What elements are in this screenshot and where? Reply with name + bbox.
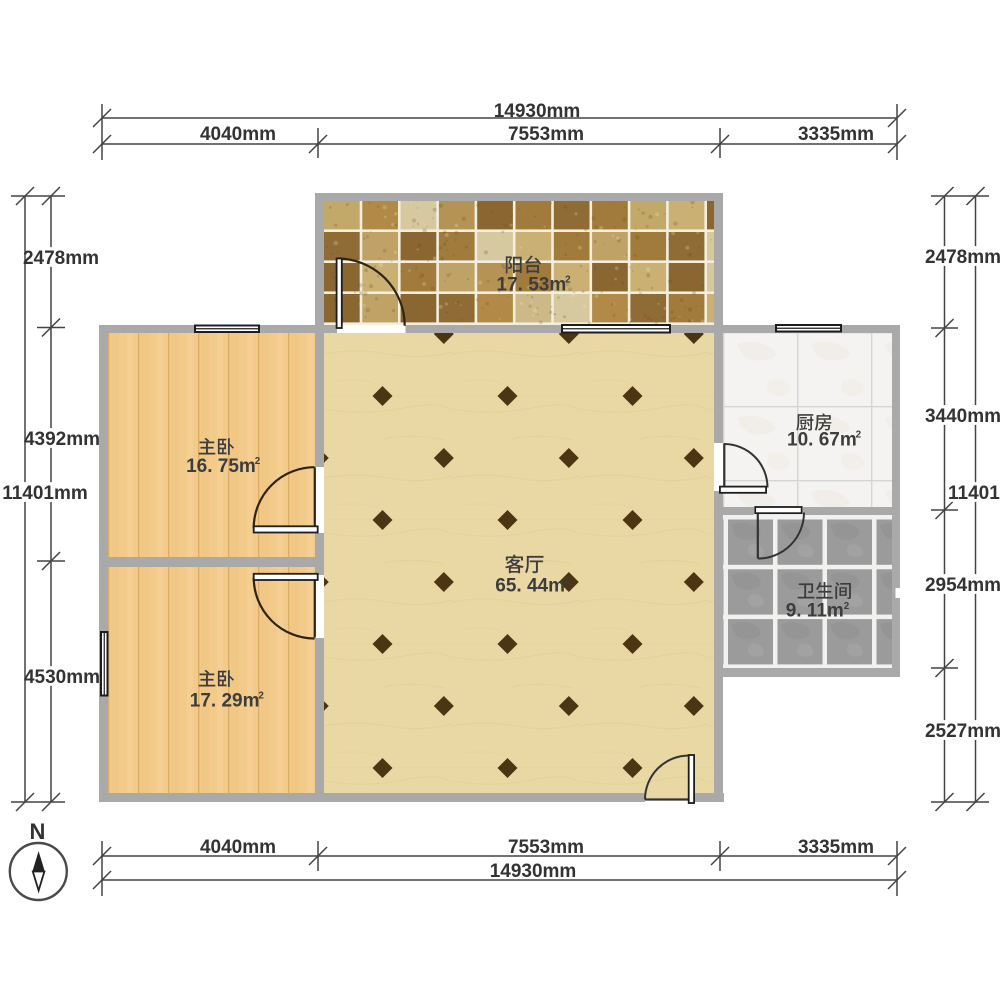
svg-text:4392mm: 4392mm bbox=[24, 429, 100, 450]
svg-text:7553mm: 7553mm bbox=[508, 124, 584, 145]
svg-text:2: 2 bbox=[564, 576, 570, 587]
svg-text:4040mm: 4040mm bbox=[200, 124, 276, 145]
svg-text:3335mm: 3335mm bbox=[798, 837, 874, 858]
svg-text:2478mm: 2478mm bbox=[925, 247, 1000, 268]
svg-text:7553mm: 7553mm bbox=[508, 837, 584, 858]
svg-text:17. 29m: 17. 29m bbox=[190, 690, 260, 711]
svg-text:2: 2 bbox=[844, 601, 850, 612]
svg-text:2478mm: 2478mm bbox=[23, 248, 99, 269]
svg-text:11401mm: 11401mm bbox=[2, 483, 88, 504]
svg-text:14930mm: 14930mm bbox=[490, 861, 577, 882]
svg-text:3335mm: 3335mm bbox=[798, 124, 874, 145]
svg-text:2954mm: 2954mm bbox=[925, 575, 1000, 596]
svg-text:11401mm: 11401mm bbox=[948, 483, 1000, 504]
svg-text:2: 2 bbox=[565, 275, 571, 286]
svg-text:10. 67m: 10. 67m bbox=[787, 429, 857, 450]
svg-text:3440mm: 3440mm bbox=[925, 406, 1000, 427]
svg-text:9. 11m: 9. 11m bbox=[786, 601, 844, 622]
svg-text:4530mm: 4530mm bbox=[24, 667, 100, 688]
svg-text:65. 44m: 65. 44m bbox=[495, 575, 565, 596]
svg-text:2: 2 bbox=[856, 430, 862, 441]
svg-text:4040mm: 4040mm bbox=[200, 837, 276, 858]
svg-text:16. 75m: 16. 75m bbox=[186, 456, 256, 477]
svg-text:14930mm: 14930mm bbox=[494, 101, 581, 122]
svg-text:17. 53m: 17. 53m bbox=[497, 274, 567, 295]
svg-text:2527mm: 2527mm bbox=[925, 721, 1000, 742]
svg-text:2: 2 bbox=[258, 691, 264, 702]
svg-text:2: 2 bbox=[255, 456, 261, 467]
svg-text:N: N bbox=[30, 819, 46, 844]
